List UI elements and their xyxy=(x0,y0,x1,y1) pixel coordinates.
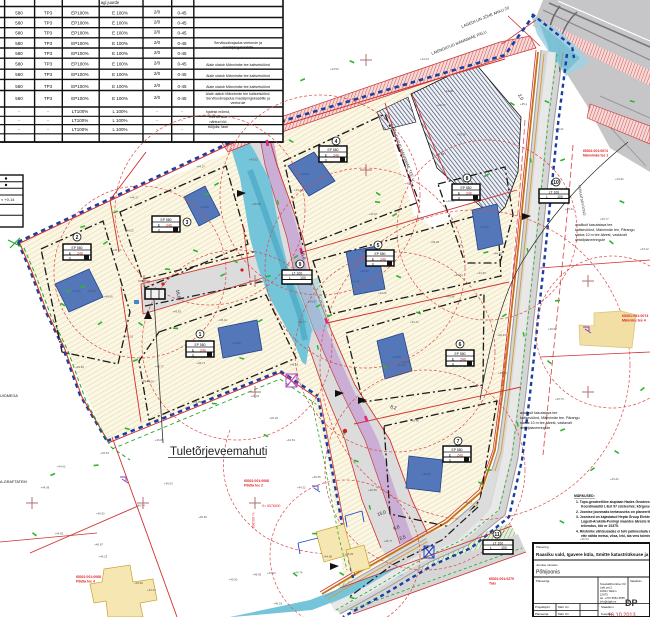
svg-text:detailplaneeringule: detailplaneeringule xyxy=(575,238,605,242)
svg-text:TP3: TP3 xyxy=(44,84,53,89)
svg-text:3. Joonised on kajastatud Hep: 3. Joonised on kajastatud Hepta Group El… xyxy=(576,514,650,519)
svg-text:L: L xyxy=(289,276,291,280)
svg-text:0-45: 0-45 xyxy=(177,72,187,77)
svg-text:1: 1 xyxy=(199,332,202,338)
svg-text:Põldla tee 4: Põldla tee 4 xyxy=(76,580,95,584)
svg-text:8: 8 xyxy=(466,176,469,182)
svg-text:TP3: TP3 xyxy=(44,72,53,77)
svg-text:Põldla tee 2: Põldla tee 2 xyxy=(244,484,263,488)
svg-text:L: L xyxy=(490,546,492,550)
svg-text:agi juurde: agi juurde xyxy=(101,0,120,5)
svg-text:EP100%: EP100% xyxy=(71,21,89,26)
svg-text:E 100%: E 100% xyxy=(112,21,128,26)
svg-text:+46.42: +46.42 xyxy=(437,103,446,107)
svg-text:5: 5 xyxy=(377,243,380,249)
svg-text:+44.02: +44.02 xyxy=(57,465,66,469)
svg-text:MÄRKUSED:: MÄRKUSED: xyxy=(574,494,595,498)
svg-text:EP100%: EP100% xyxy=(71,62,89,67)
svg-text:Alale ulatub Männimäe tee kait: Alale ulatub Männimäe tee kaitsetsöönd xyxy=(206,63,270,67)
svg-text:+43.12: +43.12 xyxy=(640,247,649,251)
svg-text:TP3: TP3 xyxy=(44,21,53,26)
svg-text:240: 240 xyxy=(166,224,172,228)
svg-text:65301:001:0074: 65301:001:0074 xyxy=(622,314,648,318)
svg-text:+44.17: +44.17 xyxy=(130,196,139,200)
svg-text:TP3: TP3 xyxy=(44,31,53,36)
svg-text:Staadium: Staadium xyxy=(601,605,614,609)
svg-text:+45,00: +45,00 xyxy=(300,172,309,176)
svg-text:A-GRAFTATEM: A-GRAFTATEM xyxy=(0,480,27,484)
svg-text:580: 580 xyxy=(15,31,23,36)
svg-text:+45.07: +45.07 xyxy=(405,182,414,186)
svg-text:+45.06: +45.06 xyxy=(104,294,113,298)
svg-text:65301:001:0074: 65301:001:0074 xyxy=(583,149,608,153)
svg-text:+46.87: +46.87 xyxy=(94,543,103,547)
svg-text:100: 100 xyxy=(501,546,507,550)
svg-text:+44.30: +44.30 xyxy=(477,271,486,275)
svg-text:+45,00: +45,00 xyxy=(422,472,431,476)
svg-text:580: 580 xyxy=(15,62,23,67)
svg-text:16.10.2013: 16.10.2013 xyxy=(608,613,636,617)
svg-text:6: 6 xyxy=(459,342,462,348)
svg-text:Alale ulatub Männimäe tee kait: Alale ulatub Männimäe tee kaitsetsöönd xyxy=(206,85,270,89)
svg-text:0-45: 0-45 xyxy=(177,31,187,36)
svg-text:+45.77: +45.77 xyxy=(600,217,609,221)
svg-text:Mart Un: Mart Un xyxy=(558,612,569,616)
svg-text:Servituudivajadus veetorule ja: Servituudivajadus veetorule ja xyxy=(214,41,262,45)
svg-text:+46.77: +46.77 xyxy=(297,320,306,324)
svg-text:+44.74: +44.74 xyxy=(294,571,303,575)
svg-text:avalikult kasutatava tee: avalikult kasutatava tee xyxy=(575,223,612,227)
svg-text:E 100%: E 100% xyxy=(112,72,128,77)
svg-text:hjateist mõmid,: hjateist mõmid, xyxy=(206,110,230,114)
svg-text:+46.36: +46.36 xyxy=(345,552,354,556)
svg-text:EP 580: EP 580 xyxy=(460,186,471,190)
svg-text:1. Topo-geodeetiline aluplaan: 1. Topo-geodeetiline aluplaan Hades Geod… xyxy=(576,499,650,504)
svg-text:240: 240 xyxy=(333,154,339,158)
svg-text:detailplaneeringule: detailplaneeringule xyxy=(520,426,550,430)
svg-text:+46.65: +46.65 xyxy=(87,289,96,293)
svg-text:+45.01: +45.01 xyxy=(218,318,227,322)
svg-text:+45.05: +45.05 xyxy=(192,400,201,404)
svg-text:TP3: TP3 xyxy=(44,41,53,46)
svg-text:+45.73: +45.73 xyxy=(555,397,564,401)
svg-text:+43.02: +43.02 xyxy=(249,158,258,162)
svg-text:Alale ulatub Männimäe tee kait: Alale ulatub Männimäe tee kaitsetsöönd. xyxy=(206,92,271,96)
svg-text:+43.53: +43.53 xyxy=(330,67,339,71)
svg-text:+43.92: +43.92 xyxy=(615,177,624,181)
svg-text:TP3: TP3 xyxy=(44,62,53,67)
svg-text:Raasiku vald, Igavere küla, Sm: Raasiku vald, Igavere küla, Smitte katas… xyxy=(536,552,650,557)
svg-text:0: 0 xyxy=(69,257,71,261)
svg-text:LT100%: LT100% xyxy=(72,118,88,123)
svg-text:EP100%: EP100% xyxy=(71,41,89,46)
svg-text:2. Joonise joonmaks teetavuse: 2. Joonise joonmaks teetavuseks on plane… xyxy=(576,510,650,514)
svg-text:avalikult kasutatava tee: avalikult kasutatava tee xyxy=(520,411,557,415)
svg-text:UIOMEGA: UIOMEGA xyxy=(0,394,18,398)
svg-text:+43.43: +43.43 xyxy=(267,571,276,575)
svg-text:+46.23: +46.23 xyxy=(99,555,108,559)
svg-text:2/0: 2/0 xyxy=(154,20,161,25)
svg-text:2: 2 xyxy=(76,235,79,241)
svg-text:+44.68: +44.68 xyxy=(323,554,332,558)
svg-text:100: 100 xyxy=(300,276,306,280)
svg-text:Lagedi-Aruküla-Peningi maantee: Lagedi-Aruküla-Peningi maantee äärsete k… xyxy=(581,520,650,524)
svg-text:580: 580 xyxy=(15,41,23,46)
svg-text:240: 240 xyxy=(460,358,466,362)
svg-text:0-45: 0-45 xyxy=(177,11,187,16)
svg-text:EP 580: EP 580 xyxy=(374,252,385,256)
svg-text:2/0: 2/0 xyxy=(154,83,161,88)
svg-text:+44.82: +44.82 xyxy=(55,532,64,536)
svg-text:E 100%: E 100% xyxy=(112,31,128,36)
svg-text:0: 0 xyxy=(452,363,454,367)
svg-text:Männiku tee 4: Männiku tee 4 xyxy=(622,319,646,323)
svg-text:+46.85: +46.85 xyxy=(252,202,261,206)
svg-text:580: 580 xyxy=(15,21,23,26)
svg-text:+46.33: +46.33 xyxy=(273,601,282,605)
svg-text:kaitsevöönd, Männimäe tee, Pär: kaitsevöönd, Männimäe tee, Pärangu xyxy=(575,228,635,232)
svg-text:580: 580 xyxy=(15,11,23,16)
svg-text:DP: DP xyxy=(625,598,638,608)
svg-text:EP 580: EP 580 xyxy=(451,448,462,452)
svg-text:7: 7 xyxy=(457,439,460,445)
svg-text:+46.57: +46.57 xyxy=(548,327,557,331)
svg-text:+46.59: +46.59 xyxy=(368,488,377,492)
svg-text:+43.44: +43.44 xyxy=(294,188,303,192)
svg-text:0: 0 xyxy=(458,197,460,201)
svg-text:240: 240 xyxy=(77,252,83,256)
svg-text:580: 580 xyxy=(15,72,23,77)
svg-text:+45,00: +45,00 xyxy=(392,355,401,359)
svg-text:2/0: 2/0 xyxy=(154,61,161,66)
svg-text:2/0: 2/0 xyxy=(154,30,161,35)
svg-text:EP100%: EP100% xyxy=(71,72,89,77)
svg-text:0: 0 xyxy=(192,354,194,358)
svg-text:65301:001:0068: 65301:001:0068 xyxy=(244,479,269,483)
svg-text:+46.31: +46.31 xyxy=(555,127,564,131)
svg-text:Männimäe tee 1: Männimäe tee 1 xyxy=(583,154,608,158)
svg-text:+43.63: +43.63 xyxy=(172,310,181,314)
svg-text:+45.12: +45.12 xyxy=(141,379,150,383)
svg-text:EP 580: EP 580 xyxy=(327,148,338,152)
svg-text:kaitsevöönd, Männimäe tee, Pär: kaitsevöönd, Männimäe tee, Pärangu xyxy=(520,416,580,420)
svg-text:10: 10 xyxy=(553,180,559,186)
svg-text:0-45: 0-45 xyxy=(177,21,187,26)
svg-text:TP3: TP3 xyxy=(44,96,53,101)
svg-text:+45,00: +45,00 xyxy=(480,225,489,229)
svg-text:3: 3 xyxy=(186,220,189,226)
svg-text:Koordinaadid L-Est 97 süsteemi: Koordinaadid L-Est 97 süsteemis; kõrguse… xyxy=(581,505,650,509)
svg-text:+45.90: +45.90 xyxy=(229,578,238,582)
svg-text:65301:001:0279: 65301:001:0279 xyxy=(489,577,514,581)
svg-text:EP 580: EP 580 xyxy=(160,218,171,222)
svg-text:+44.98: +44.98 xyxy=(446,295,455,299)
svg-text:0-45: 0-45 xyxy=(177,41,187,46)
svg-text:Planeerija: Planeerija xyxy=(535,612,549,616)
svg-text:status 10 m tee äärest, vastav: status 10 m tee äärest, vastavalt xyxy=(520,421,572,425)
svg-text:+45,00: +45,00 xyxy=(72,289,81,293)
svg-text:+44.39: +44.39 xyxy=(351,280,360,284)
svg-text:LT100%: LT100% xyxy=(72,109,88,114)
svg-text:Y= 651800: Y= 651800 xyxy=(251,512,255,529)
svg-text:+45.13: +45.13 xyxy=(497,333,506,337)
svg-text:+44.24: +44.24 xyxy=(147,588,156,592)
svg-text:+45,00: +45,00 xyxy=(232,341,241,345)
svg-text:+44.08: +44.08 xyxy=(41,485,50,489)
svg-text:≈ +0,14: ≈ +0,14 xyxy=(1,197,15,202)
svg-text:Põhijoonis: Põhijoonis xyxy=(536,570,560,576)
svg-text:580: 580 xyxy=(15,96,23,101)
svg-text:240: 240 xyxy=(457,454,463,458)
svg-text:+45,00: +45,00 xyxy=(200,205,209,209)
svg-text:0-45: 0-45 xyxy=(177,51,187,56)
svg-text:EP100%: EP100% xyxy=(71,51,89,56)
svg-text:580: 580 xyxy=(15,51,23,56)
svg-text:L 100%: L 100% xyxy=(112,109,127,114)
svg-text:+46.92: +46.92 xyxy=(96,512,105,516)
svg-text:EP100%: EP100% xyxy=(71,84,89,89)
svg-text:0: 0 xyxy=(449,459,451,463)
svg-text:E 100%: E 100% xyxy=(112,51,128,56)
svg-text:LT100%: LT100% xyxy=(72,127,88,132)
svg-text:E 100%: E 100% xyxy=(112,11,128,16)
svg-text:+46.20: +46.20 xyxy=(269,416,278,420)
svg-text:0-45: 0-45 xyxy=(177,84,187,89)
svg-text:14,00: 14,00 xyxy=(446,89,453,93)
svg-text:+46.71: +46.71 xyxy=(196,361,205,365)
svg-text:Planering: Planering xyxy=(536,545,549,549)
svg-text:veetorule: veetorule xyxy=(231,101,246,105)
svg-text:E 100%: E 100% xyxy=(112,62,128,67)
svg-text:EP 580: EP 580 xyxy=(71,246,82,250)
svg-text:+46.77: +46.77 xyxy=(384,539,393,543)
svg-text:580: 580 xyxy=(15,84,23,89)
svg-text:+43.49: +43.49 xyxy=(457,132,466,136)
svg-text:+46.95: +46.95 xyxy=(253,572,262,576)
svg-text:+44.44: +44.44 xyxy=(420,57,429,61)
svg-text:+43.76: +43.76 xyxy=(401,360,410,364)
svg-text:E 100%: E 100% xyxy=(112,41,128,46)
svg-text:EP 580: EP 580 xyxy=(454,352,465,356)
svg-text:+45.86: +45.86 xyxy=(410,419,419,423)
svg-text:+45.00: +45.00 xyxy=(415,217,424,221)
svg-text:L: L xyxy=(546,195,548,199)
svg-text:TP3: TP3 xyxy=(44,51,53,56)
svg-text:0: 0 xyxy=(325,159,327,163)
svg-text:+43.07: +43.07 xyxy=(113,248,122,252)
svg-text:240: 240 xyxy=(466,192,472,196)
svg-text:+46.65: +46.65 xyxy=(312,475,321,479)
svg-text:+45,00: +45,00 xyxy=(360,269,369,273)
svg-text:+46.14: +46.14 xyxy=(290,363,299,367)
svg-text:Talu: Talu xyxy=(489,582,496,586)
svg-text:+45,1: +45,1 xyxy=(520,102,528,106)
svg-text:EP100%: EP100% xyxy=(71,96,89,101)
svg-text:EP100%: EP100% xyxy=(71,11,89,16)
svg-text:L 100%: L 100% xyxy=(112,127,127,132)
svg-text:100: 100 xyxy=(557,195,563,199)
svg-text:240: 240 xyxy=(200,349,206,353)
svg-text:0: 0 xyxy=(372,263,374,267)
svg-text:Projektijuht: Projektijuht xyxy=(535,605,550,609)
svg-text:L 100%: L 100% xyxy=(112,118,127,123)
svg-text:0-45: 0-45 xyxy=(177,62,187,67)
svg-text:+44.81: +44.81 xyxy=(286,438,295,442)
svg-text:EP100%: EP100% xyxy=(71,31,89,36)
svg-text:Mart Un: Mart Un xyxy=(558,605,569,609)
svg-text:+45.64: +45.64 xyxy=(100,451,109,455)
svg-text:2/0: 2/0 xyxy=(154,50,161,55)
svg-text:+43.71: +43.71 xyxy=(410,320,419,324)
svg-text:TP3: TP3 xyxy=(44,11,53,16)
svg-text:4: 4 xyxy=(335,139,338,145)
svg-text:+45.03: +45.03 xyxy=(164,482,173,486)
svg-text:Servituudivajadus madalpingeka: Servituudivajadus madalpingekaablile ja xyxy=(206,97,270,101)
svg-text:E 100%: E 100% xyxy=(112,96,128,101)
svg-text:2/0: 2/0 xyxy=(154,10,161,15)
svg-text:+44.89: +44.89 xyxy=(436,152,445,156)
svg-text:11: 11 xyxy=(494,532,500,538)
svg-text:2/0: 2/0 xyxy=(154,71,161,76)
svg-text:Joonise nimetus: Joonise nimetus xyxy=(536,563,558,567)
svg-text:14,00: 14,00 xyxy=(352,97,359,101)
svg-text:X= 6578400: X= 6578400 xyxy=(262,504,280,508)
svg-text:Tuletõrjeveemahuti: Tuletõrjeveemahuti xyxy=(170,446,267,458)
svg-text:+43.29: +43.29 xyxy=(378,291,387,295)
svg-text:0-45: 0-45 xyxy=(177,96,187,101)
svg-text:+46.27: +46.27 xyxy=(463,500,472,504)
svg-text:status 10 m tee äärest, vastav: status 10 m tee äärest, vastavalt xyxy=(575,233,627,237)
svg-text:+43.07: +43.07 xyxy=(308,299,317,303)
svg-text:+43.02: +43.02 xyxy=(125,335,134,339)
svg-text:65301:001:0068: 65301:001:0068 xyxy=(76,575,101,579)
svg-text:tööjoks; tase: tööjoks; tase xyxy=(208,125,228,129)
svg-text:info@dpjk.ee: info@dpjk.ee xyxy=(600,600,617,604)
svg-text:0: 0 xyxy=(158,229,160,233)
svg-text:+45.80: +45.80 xyxy=(498,371,507,375)
svg-text:nähtud töö: nähtud töö xyxy=(210,120,227,124)
svg-text:+44.83: +44.83 xyxy=(493,252,502,256)
svg-text:+45.34: +45.34 xyxy=(565,207,574,211)
svg-text:Alale ulatub Männimäe tee kait: Alale ulatub Männimäe tee kaitsetsöönd xyxy=(206,74,270,78)
svg-text:+44.32: +44.32 xyxy=(297,486,306,490)
svg-text:tehendus, töö nr 22375.: tehendus, töö nr 22375. xyxy=(581,524,619,528)
svg-text:ette nähta metsa, võsa, leki,: ette nähta metsa, võsa, leki, aia vms to… xyxy=(581,534,650,538)
svg-text:4. Riistmike vähtsusadas ei t: 4. Riistmike vähtsusadas ei tohi paiknes… xyxy=(576,529,650,533)
svg-text:4,0: 4,0 xyxy=(458,243,462,247)
svg-text:madalpingekaablile: madalpingekaablile xyxy=(223,46,254,50)
svg-text:+43.42: +43.42 xyxy=(610,477,619,481)
svg-text:Planeerija: Planeerija xyxy=(536,579,550,583)
svg-text:+46.77: +46.77 xyxy=(155,365,164,369)
svg-text:240: 240 xyxy=(380,258,386,262)
svg-text:+45.03: +45.03 xyxy=(454,273,463,277)
svg-text:Staadium: Staadium xyxy=(630,579,642,583)
svg-text:2/0: 2/0 xyxy=(154,95,161,100)
svg-text:+46.20: +46.20 xyxy=(430,240,439,244)
svg-text:+43.99: +43.99 xyxy=(75,365,84,369)
svg-text:+44.22: +44.22 xyxy=(125,229,134,233)
svg-text:+43.97: +43.97 xyxy=(369,212,378,216)
svg-text:+45.83: +45.83 xyxy=(198,515,207,519)
svg-text:+44.27: +44.27 xyxy=(196,165,205,169)
svg-text:+44.59: +44.59 xyxy=(134,581,143,585)
svg-text:E 100%: E 100% xyxy=(112,84,128,89)
svg-text:2/0: 2/0 xyxy=(154,40,161,45)
svg-text:EP 580: EP 580 xyxy=(194,343,205,347)
svg-text:9: 9 xyxy=(299,262,302,268)
